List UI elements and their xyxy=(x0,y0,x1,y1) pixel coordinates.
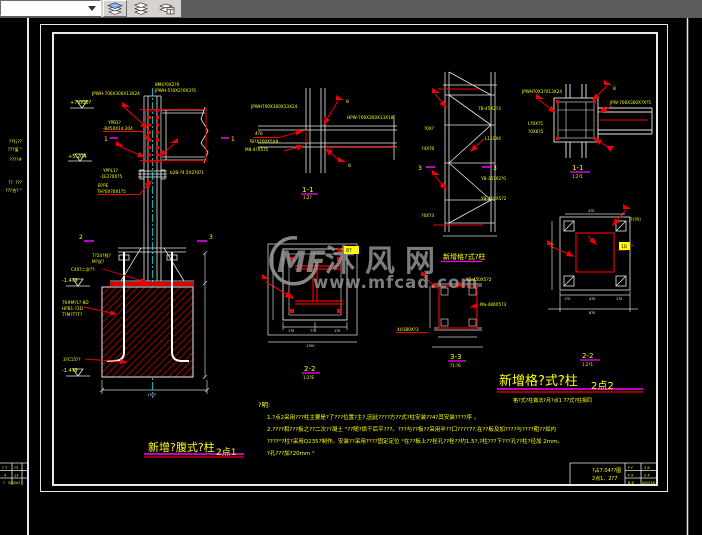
drawing-subtitle: 格?式?柱做法?月?点1 7?式?柱相同 xyxy=(513,397,592,404)
cad-annotation: ??. ??? xyxy=(8,180,22,185)
cad-annotation: 500?48 xyxy=(642,481,655,485)
cad-annotation: ? xyxy=(3,481,5,485)
cad-annotation: M?丝? xyxy=(92,258,104,264)
cad-annotation: JPWH-5?0X2?0X3?5 xyxy=(154,88,196,93)
detail-foundation xyxy=(66,241,209,394)
elevation-label: -1.4?9 xyxy=(62,278,78,284)
cad-annotation: 7B-45X2?3 xyxy=(478,106,501,111)
cad-annotation: ? 7 xyxy=(2,466,7,470)
cad-annotation: 1:2? xyxy=(303,195,312,200)
cad-annotation: YB-450X5?2 xyxy=(465,277,492,282)
section-mark-2: 2 xyxy=(79,234,83,241)
cad-annotation: b2B-?4.5X2?0?1 xyxy=(170,170,204,175)
cad-annotation: B?PE xyxy=(98,183,109,188)
cad-annotation: 8 xyxy=(346,99,349,105)
cad-annotation: ???合? ° xyxy=(5,187,22,194)
section-label-2-2: 2-2 xyxy=(582,352,593,360)
cad-annotation: 1?0 xyxy=(616,297,622,301)
cad-annotation: ??行?? xyxy=(9,138,22,145)
cad-annotation: TH?0X?0X1?5 xyxy=(96,189,126,194)
cad-annotation: -B450X14.204 xyxy=(103,126,133,131)
section-label-2-2: 2-2 xyxy=(304,365,315,373)
layer-stack-button[interactable] xyxy=(129,0,153,17)
cad-annotation: 4U1B0X?3 xyxy=(397,327,419,332)
cad-annotation: L110X4 xyxy=(485,136,501,141)
layer-dropdown[interactable] xyxy=(0,0,101,16)
cad-annotation: 1?0 xyxy=(288,329,294,333)
note-line-4: ?孔???加?20mm ° xyxy=(267,449,315,457)
cad-annotation: ?0X? xyxy=(424,126,434,131)
note-line-2: 2.????和???板之??二次??凝土 °??随?烘干后平???。???与??… xyxy=(267,425,556,433)
section-mark-1: 1 xyxy=(231,136,235,143)
cad-annotation: 8?0 xyxy=(589,311,595,315)
cad-annotation: 3?C15?? xyxy=(63,357,81,362)
cad-annotation: F 9 xyxy=(628,474,633,478)
cad-annotation: 7?24?栓? xyxy=(92,252,111,259)
cad-annotation: 13 xyxy=(14,474,18,478)
layer-properties-icon xyxy=(159,2,175,15)
layer-list-button[interactable] xyxy=(103,0,127,17)
cad-annotation: 200/A? xyxy=(8,481,20,485)
section-mark-1: 1 xyxy=(104,136,108,143)
watermark-url: www.mfcad.com xyxy=(313,273,479,292)
cad-annotation: ???值 ° xyxy=(8,146,22,153)
detail-subtitle: 新增格?式?柱 xyxy=(443,252,485,261)
layer-properties-button[interactable] xyxy=(155,0,179,17)
cad-annotation: 8 xyxy=(348,163,351,169)
section-mark-3: 3 xyxy=(418,165,422,172)
elevation-label: +7.000? xyxy=(70,100,92,106)
cad-annotation: HPW-700X300X13X18 xyxy=(347,115,394,120)
cad-annotation: C40?二次??: xyxy=(71,266,96,273)
section-mark-3: 3 xyxy=(493,165,497,172)
drawing-title-2dot2: 新增格?式?柱 xyxy=(499,373,578,389)
cad-annotation: Ma-480X5?3 xyxy=(480,302,506,307)
layers-icon xyxy=(133,2,149,15)
grout-pad xyxy=(110,282,194,286)
cad-annotation: 4 xyxy=(4,474,7,478)
layers-blue-icon xyxy=(107,2,123,15)
titleblock-drawing-number: 2点1、2?7 xyxy=(592,476,617,482)
cad-annotation: 4?0 xyxy=(589,297,595,301)
cad-annotation: ????# xyxy=(10,157,23,162)
cad-annotation: 1:2?1 xyxy=(582,362,594,367)
cad-annotation: JPWH?0X3?X13X24 xyxy=(521,89,562,94)
cad-annotation: T?M?T?T? xyxy=(61,312,82,317)
cad-annotation: 2 4 xyxy=(644,474,650,478)
cad-annotation: ?4X?8 xyxy=(421,146,434,151)
section-label-1-1: 1-1 xyxy=(572,164,583,172)
cad-annotation: ?0X?3 xyxy=(421,213,434,218)
section-label-3-3: 3-3 xyxy=(450,353,461,361)
cad-annotation: B 8 xyxy=(628,481,634,485)
cad-annotation: YPPL1? xyxy=(102,168,118,173)
cad-annotation: 1?00 xyxy=(306,344,315,348)
cad-annotation: 7?0 xyxy=(310,329,316,333)
cad-annotation: YPB1? xyxy=(107,120,121,125)
cad-annotation: 1?0 xyxy=(334,329,340,333)
cad-annotation: YB-35?X2?0 xyxy=(480,176,506,181)
cad-annotation: F F xyxy=(628,466,633,470)
cad-annotation: ?B?X200X5X8 xyxy=(249,139,279,144)
chevron-down-icon xyxy=(88,6,96,11)
section-label-1-1: 1-1 xyxy=(302,186,313,194)
notes-heading: ?明: xyxy=(258,401,270,409)
cad-annotation: ?1:?6 xyxy=(450,363,461,368)
drawing-title-2dot1: 新增?腹式?柱 xyxy=(148,440,215,454)
cad-annotation: 1?0 xyxy=(564,297,570,301)
cad-annotation: JPWH-700X300X13X24 xyxy=(91,91,140,96)
drawing-title-2dot2-suffix: 2点2 xyxy=(591,380,614,392)
cad-annotation: ?3 xyxy=(14,466,18,470)
cad-application-window: MF 沐风网 www.mfcad.com +7.000?JPWH-700X300… xyxy=(0,0,702,535)
note-line-3: ????°?柱?采用Q235?制作。安装??采用????固定定位 °在??板上?… xyxy=(267,437,563,445)
cad-annotation: 76#M?L?-8D xyxy=(62,300,89,305)
layer-toolbar-buttons xyxy=(101,0,181,17)
cad-annotation: JPW-700X300X?X?5 xyxy=(609,100,651,105)
cad-annotation: 3 8 xyxy=(644,466,650,470)
cad-annotation: 8M4?0X2?0 xyxy=(155,82,180,87)
detail-lattice-column xyxy=(426,72,497,236)
cad-annotation: HPB1-?2D xyxy=(62,306,83,311)
cad-annotation: 1:2?1 xyxy=(572,174,584,179)
cad-annotation: YB-410X5?2 xyxy=(480,196,507,201)
cad-annotation: J?(?R) xyxy=(628,217,641,222)
drawing-title-2dot1-suffix: 2点1 xyxy=(216,447,236,458)
weld-tag: 1B xyxy=(621,244,627,250)
weld-tag: 8? xyxy=(346,248,352,254)
cad-canvas[interactable]: MF 沐风网 www.mfcad.com +7.000?JPWH-700X300… xyxy=(0,0,702,535)
cad-annotation: 8 xyxy=(613,86,616,92)
watermark: MF 沐风网 www.mfcad.com xyxy=(271,238,479,292)
cad-annotation: ?0X6?5 xyxy=(528,129,544,134)
elevation-label: -1.4?9 xyxy=(62,368,78,374)
cad-annotation: 4?0 xyxy=(255,131,263,136)
cad-annotation: M8-4?X5?5 xyxy=(245,147,268,152)
note-line-1: 1.?点2采用???柱主要是?了???位置?主?,因此????方??式?柱安装?… xyxy=(267,413,479,421)
titleblock-drawing-name: ?占7.04??图 xyxy=(592,467,621,474)
cad-annotation: 1?0? xyxy=(147,392,156,397)
elevation-label: +5.204 xyxy=(68,154,87,160)
cad-annotation: JPWH700X300X13X24 xyxy=(250,104,298,109)
section-mark-3: 3 xyxy=(209,234,213,241)
layers-toolbar xyxy=(0,0,702,18)
foundation-hatch xyxy=(102,287,193,377)
cad-annotation: -1E2?0X?5 xyxy=(100,174,122,179)
cad-annotation: L?0X?5 xyxy=(528,121,543,126)
detail-section-2-2-right xyxy=(547,204,638,360)
cad-annotation: 4?0 xyxy=(588,209,594,213)
cad-annotation: 1:2?E xyxy=(303,375,315,380)
